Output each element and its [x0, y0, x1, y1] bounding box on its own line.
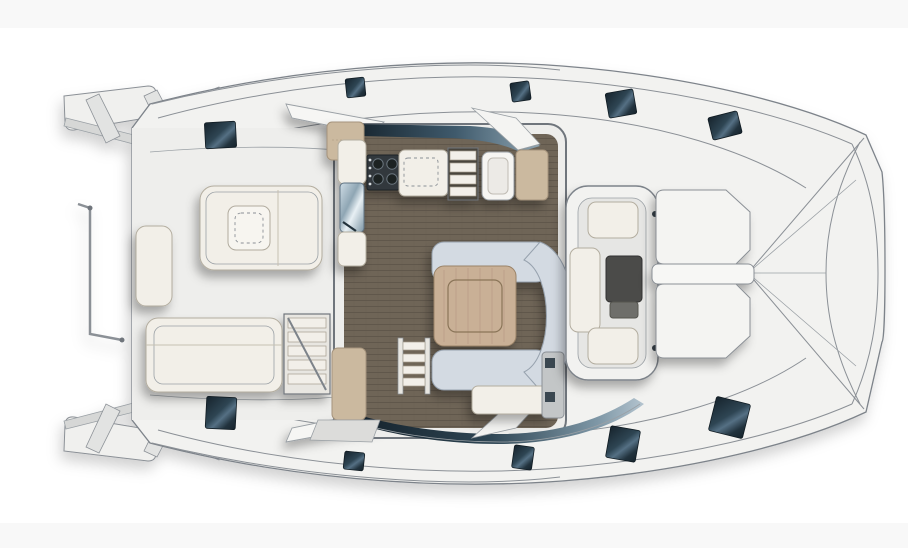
forward-cockpit	[566, 186, 658, 380]
galley-sink	[340, 183, 364, 232]
galley-fwd-cabinet	[516, 150, 548, 200]
foredeck-locker-port	[656, 284, 750, 358]
davit-rail	[78, 204, 125, 343]
galley-fridge	[482, 152, 514, 200]
fwd-sofa-top	[588, 202, 638, 238]
saloon-pillar-base	[310, 420, 380, 442]
saloon-pillar	[332, 348, 366, 420]
deck-hatch	[343, 451, 365, 471]
stove-cooktop	[367, 155, 399, 190]
galley-counter-mid	[338, 232, 366, 266]
deck-hatch	[511, 445, 534, 471]
deck-hatch	[205, 396, 237, 430]
dinette-table	[434, 266, 516, 346]
aft-l-bench	[146, 318, 282, 392]
foredeck-walkway	[652, 264, 754, 284]
foredeck-locker-starboard	[656, 190, 750, 264]
helm-cabinet	[542, 352, 564, 418]
galley-counter-fwd	[399, 150, 448, 196]
deck-hatch	[605, 426, 640, 463]
fwd-sofa-left	[570, 248, 600, 332]
dinette-bench-fwd	[472, 386, 552, 414]
deck-hatch	[345, 77, 366, 98]
foredeck	[652, 190, 754, 358]
deck-hatch	[605, 89, 637, 118]
deck-hatch	[510, 81, 531, 102]
companionway-stairs-starboard	[448, 148, 478, 200]
aft-bench-side	[136, 226, 172, 306]
fwd-sofa-bottom	[588, 328, 638, 364]
companionway-stairs-port	[284, 314, 330, 394]
fwd-cockpit-table	[606, 256, 642, 302]
deck-plan-canvas	[0, 0, 908, 548]
catamaran-deck-plan	[0, 0, 908, 548]
fwd-cockpit-step	[610, 302, 638, 318]
galley-counter-aft	[338, 140, 366, 184]
deck-hatch	[204, 121, 236, 149]
dinette-ladder	[398, 338, 430, 394]
